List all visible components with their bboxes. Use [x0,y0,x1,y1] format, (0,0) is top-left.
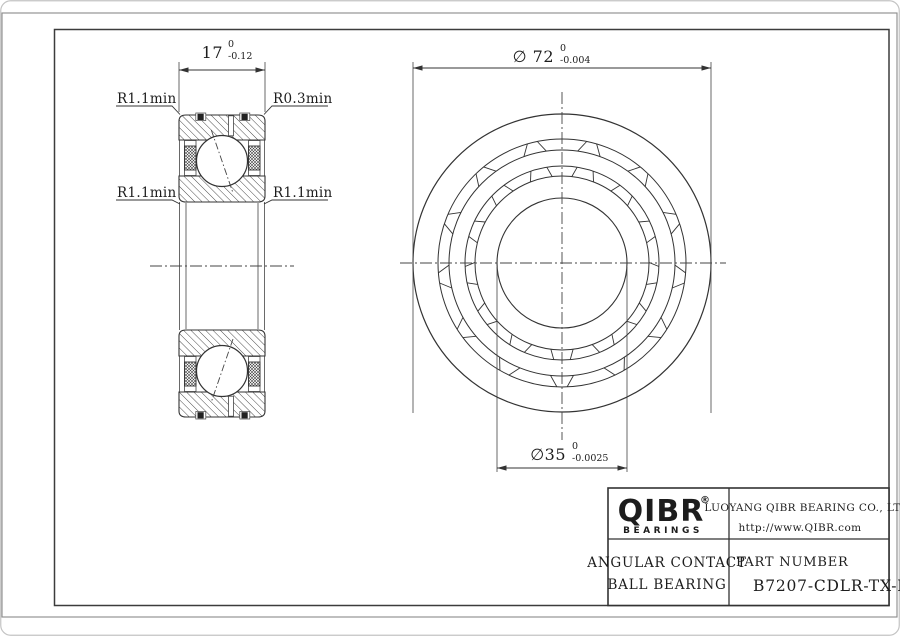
cage-rivet-lower-right [242,412,248,418]
dim-width-tol-upper: 0 [228,39,234,50]
cage-rivet-lower-left [198,412,204,418]
part-number-label: PART NUMBER [736,555,849,570]
company-website: http://www.QIBR.com [738,522,861,534]
label-r-top-left: R1.1min [117,91,177,107]
product-line1: ANGULAR CONTACT [586,555,746,571]
part-number-value: B7207-CDLR-TX-P2 [753,577,900,595]
bearing-drawing-svg: 17 0 -0.12 R1.1min R0.3min R1.1min R1.1m… [0,0,900,636]
cage-section-left-lower [185,362,197,386]
product-line2: BALL BEARING [607,577,726,593]
brand-logo: QIBR ® BEARINGS [618,494,710,536]
dim-width-tol-lower: -0.12 [228,51,252,62]
cage-section-left-upper [185,146,197,170]
cage-section-right-lower [249,362,261,386]
dim-outer-tol-upper: 0 [560,43,566,54]
dim-bore-value: ∅35 [530,445,566,464]
dim-bore-tol-upper: 0 [572,441,578,452]
label-r-mid-right: R1.1min [273,185,333,201]
dim-bore-tol-lower: -0.0025 [572,453,608,464]
logo-tagline: BEARINGS [623,526,703,536]
cage-section-right-upper [249,146,261,170]
counterbore-slot-lower [229,396,234,416]
title-block: QIBR ® BEARINGS LUOYANG QIBR BEARING CO.… [586,488,900,606]
label-r-top-right: R0.3min [273,91,333,107]
dim-width-value: 17 [202,43,223,62]
dim-outer-value: ∅ 72 [513,47,554,66]
cage-rivet-upper-right [242,114,248,120]
company-name: LUOYANG QIBR BEARING CO., LTD [704,502,900,514]
label-r-mid-left: R1.1min [117,185,177,201]
cage-rivet-upper-left [198,114,204,120]
drawing-sheet: 17 0 -0.12 R1.1min R0.3min R1.1min R1.1m… [0,0,900,636]
counterbore-slot-upper [229,116,234,136]
logo-text: QIBR [618,494,705,529]
dim-outer-tol-lower: -0.004 [560,55,590,66]
